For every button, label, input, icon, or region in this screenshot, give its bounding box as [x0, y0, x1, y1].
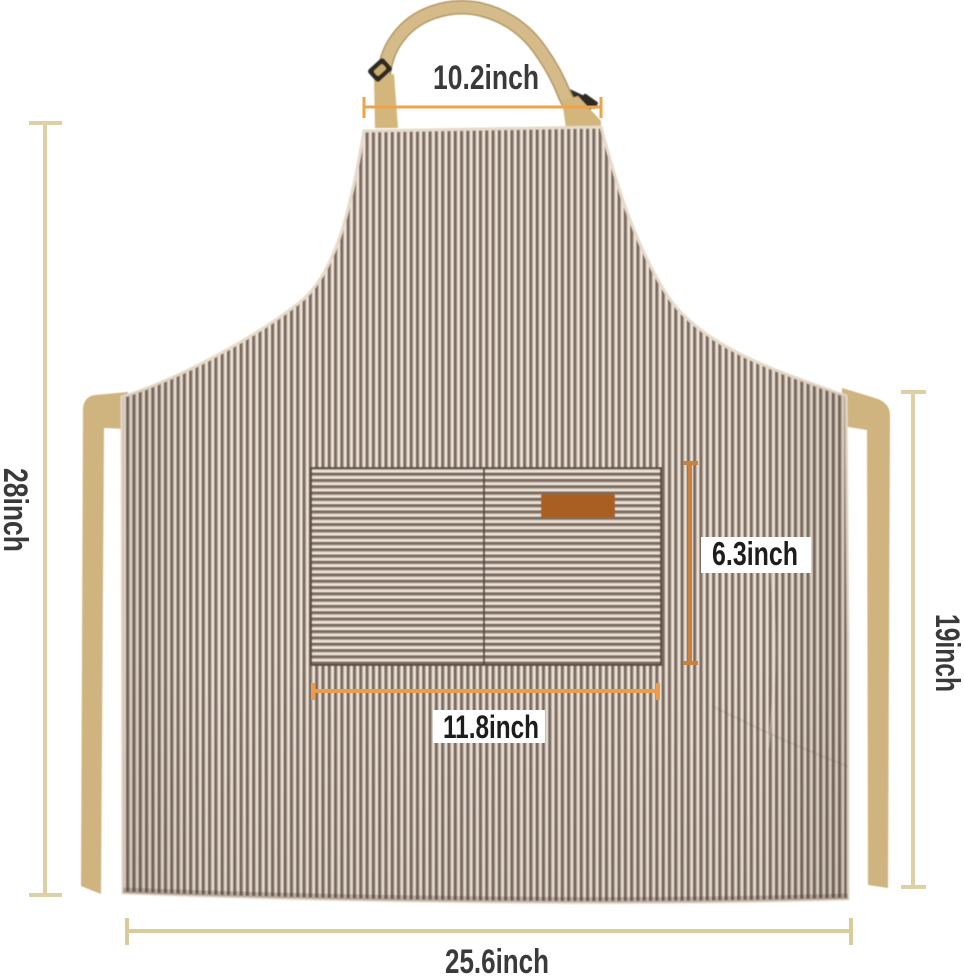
svg-text:28inch: 28inch	[0, 468, 34, 552]
svg-text:10.2inch: 10.2inch	[433, 59, 539, 97]
svg-text:25.6inch: 25.6inch	[445, 943, 549, 978]
svg-text:6.3inch: 6.3inch	[712, 535, 798, 572]
svg-text:19inch: 19inch	[928, 614, 964, 692]
svg-text:11.8inch: 11.8inch	[443, 709, 539, 745]
